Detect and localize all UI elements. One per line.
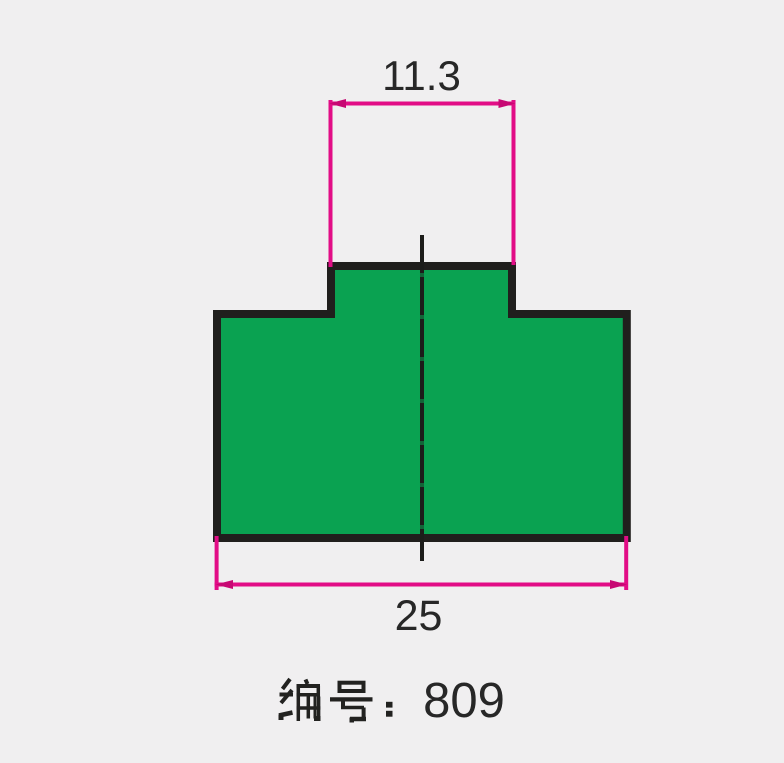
svg-text:25: 25 (395, 592, 443, 640)
svg-text:809: 809 (423, 674, 505, 728)
svg-text:11.3: 11.3 (382, 52, 461, 99)
